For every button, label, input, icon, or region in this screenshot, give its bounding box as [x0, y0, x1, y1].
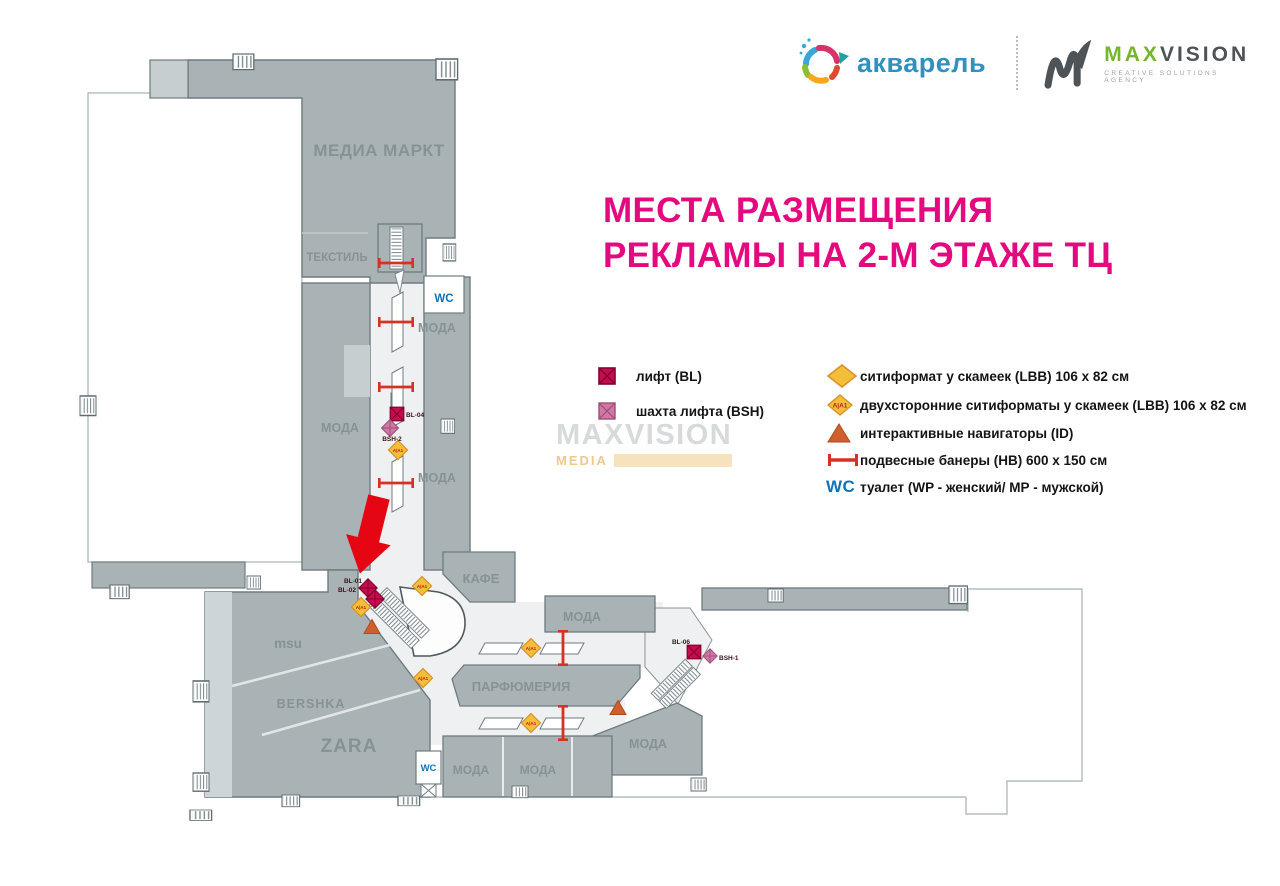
west-band-block: [92, 562, 245, 588]
cityformat-double-diamond-icon: A|A1: [826, 394, 860, 416]
store-label-bershka: BERSHKA: [277, 697, 346, 711]
watermark-bar: [614, 454, 732, 467]
logo-divider: [1016, 36, 1018, 90]
watermark-line2: MEDIA: [556, 453, 608, 468]
marker-label-bl04: BL-04: [406, 412, 424, 419]
lift-shaft-square-icon: [598, 402, 636, 420]
legend-item-wc: WC туалет (WP - женский/ МР - мужской): [826, 477, 1104, 497]
page-title-line1: МЕСТА РАЗМЕЩЕНИЯ: [603, 188, 1112, 233]
maxvision-vision: VISION: [1160, 43, 1249, 66]
wc-icon: WC: [826, 477, 860, 497]
legend-item-cityformat-double: A|A1 двухсторонние ситиформаты у скамеек…: [826, 394, 1247, 416]
legend-item-lift: лифт (BL): [598, 367, 702, 385]
marker-label-bl02: BL-02: [338, 587, 356, 594]
page-title-line2: РЕКЛАМЫ НА 2-М ЭТАЖЕ ТЦ: [603, 233, 1112, 278]
legend-label: шахта лифта (BSH): [636, 404, 764, 419]
page-title: МЕСТА РАЗМЕЩЕНИЯ РЕКЛАМЫ НА 2-М ЭТАЖЕ ТЦ: [603, 188, 1112, 278]
legend-label: ситиформат у скамеек (LBB) 106 x 82 см: [860, 369, 1129, 384]
legend-item-banner: подвесные банеры (НВ) 600 x 150 см: [826, 450, 1107, 470]
maxvision-logo: MAXVISION Creative Solutions Agency: [1044, 37, 1253, 89]
store-label-moda: МОДА: [453, 763, 490, 777]
maxvision-subtitle: Creative Solutions Agency: [1104, 70, 1253, 84]
navigator-triangle-icon: [826, 422, 860, 444]
watermark: MAXVISION MEDIA: [556, 419, 732, 468]
store-label-media-markt: МЕДИА МАРКТ: [313, 141, 444, 160]
marker-label-bsh1: BSH-1: [719, 655, 739, 662]
legend-label: двухсторонние ситиформаты у скамеек (LBB…: [860, 398, 1247, 413]
wc-room-north: WC: [424, 276, 464, 313]
store-label-msu: msu: [274, 636, 302, 651]
empty-shell-southeast: [966, 589, 1082, 814]
store-label-zara: ZARA: [321, 736, 378, 757]
legend-item-navigator: интерактивные навигаторы (ID): [826, 422, 1073, 444]
marker-label-bsh2: BSH-2: [382, 436, 402, 443]
store-label-cafe: КАФЕ: [463, 571, 500, 586]
aquarelle-logo-icon: [795, 34, 849, 92]
store-label-moda: МОДА: [520, 763, 557, 777]
wc-label-south: WC: [421, 763, 437, 774]
marker-label-bl01: BL-01: [344, 578, 362, 585]
maxvision-logo-text: MAXVISION Creative Solutions Agency: [1104, 43, 1253, 84]
east-strip-block: [702, 588, 967, 610]
marker-label-bl06: BL-06: [672, 639, 690, 646]
header-logos: акварель MAXVISION Creative Solutions Ag…: [795, 30, 1235, 96]
aquarelle-logo: акварель: [795, 34, 986, 92]
store-label-moda: МОДА: [418, 321, 456, 335]
media-markt-annex: [150, 60, 188, 98]
legend-label: подвесные банеры (НВ) 600 x 150 см: [860, 453, 1107, 468]
cityformat-diamond-icon: [826, 364, 860, 388]
maxvision-max: MAX: [1104, 43, 1160, 66]
empty-shell-northwest: [88, 93, 302, 562]
store-label-parfum: ПАРФЮМЕРИЯ: [472, 679, 571, 694]
page: { "header": { "aquarelle": "акварель", "…: [0, 0, 1280, 886]
wc-label-north: WC: [434, 293, 453, 305]
shops-west-sub: [344, 345, 370, 397]
hanging-banner-icon: [826, 450, 860, 470]
lift-square-icon: [598, 367, 636, 385]
store-label-moda: МОДА: [418, 471, 456, 485]
aquarelle-logo-text: акварель: [857, 48, 986, 79]
legend-item-cityformat: ситиформат у скамеек (LBB) 106 x 82 см: [826, 364, 1129, 388]
legend-aa-glyph: A|A1: [833, 403, 848, 410]
store-label-moda: МОДА: [321, 421, 359, 435]
legend-label: интерактивные навигаторы (ID): [860, 426, 1073, 441]
store-label-textile: ТЕКСТИЛЬ: [306, 252, 367, 264]
legend-item-shaft: шахта лифта (BSH): [598, 402, 764, 420]
legend-label: туалет (WP - женский/ МР - мужской): [860, 480, 1104, 495]
watermark-line1: MAXVISION: [556, 419, 732, 452]
legend-label: лифт (BL): [636, 369, 702, 384]
maxvision-logo-icon: [1044, 37, 1092, 89]
store-label-moda: МОДА: [629, 737, 667, 751]
store-label-moda: МОДА: [563, 610, 601, 624]
